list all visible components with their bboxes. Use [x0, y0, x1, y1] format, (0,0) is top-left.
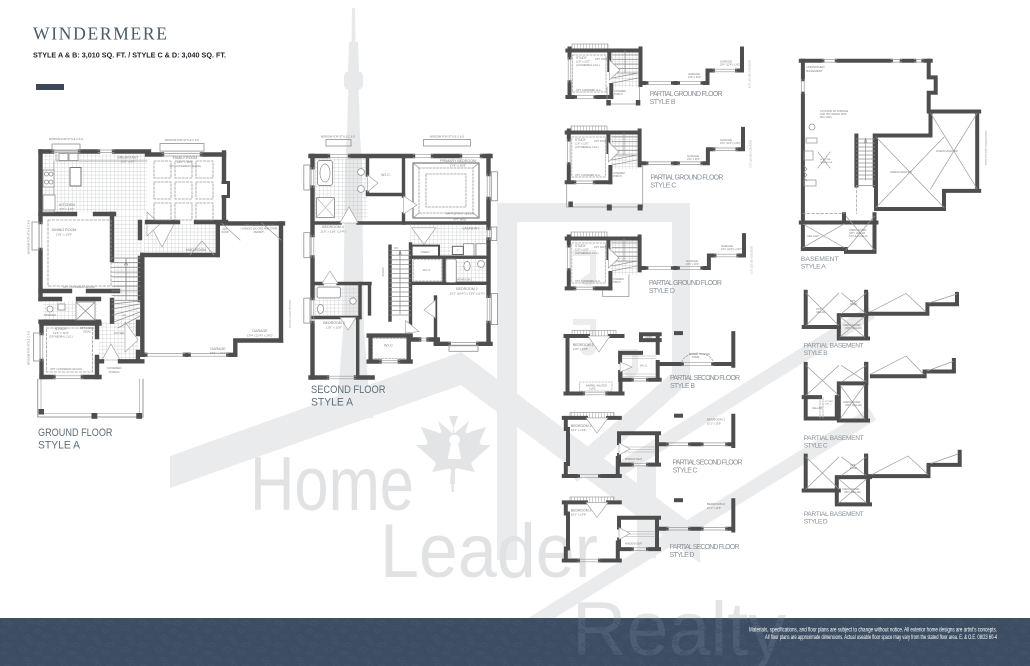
- svg-text:W.I.C.: W.I.C.: [384, 344, 394, 348]
- svg-text:LINEN: LINEN: [421, 250, 430, 254]
- svg-text:OPT. COFFERED CEILING: OPT. COFFERED CEILING: [50, 367, 82, 371]
- svg-text:19'6" x 20'2": 19'6" x 20'2": [210, 351, 226, 355]
- svg-text:WINDOW FOR STYLE C & D: WINDOW FOR STYLE C & D: [430, 135, 464, 139]
- svg-text:10'1" x 13'6": 10'1" x 13'6": [707, 421, 721, 425]
- svg-text:STYLE B AND D): STYLE B AND D): [849, 235, 868, 238]
- svg-text:10'1" x 13'6": 10'1" x 13'6": [707, 506, 721, 510]
- svg-text:OPT. COFFERED CLG.: OPT. COFFERED CLG.: [575, 174, 601, 177]
- svg-text:LINEN: LINEN: [645, 337, 652, 340]
- svg-text:MODIFIED FOR STYLE D: MODIFIED FOR STYLE D: [750, 246, 753, 274]
- svg-text:11'6" x 12'6": 11'6" x 12'6": [326, 325, 342, 329]
- svg-text:GROUND FLOOR: GROUND FLOOR: [38, 427, 113, 439]
- svg-text:GARAGE: GARAGE: [252, 329, 268, 333]
- svg-text:PARTIAL SECOND FLOOR: PARTIAL SECOND FLOOR: [670, 375, 740, 382]
- svg-text:BEDROOM 3: BEDROOM 3: [323, 321, 345, 325]
- svg-text:CELLAR: CELLAR: [816, 311, 826, 314]
- svg-text:CLNG.: CLNG.: [589, 387, 597, 390]
- svg-text:UNEXCAVATED GARAGE AREA: UNEXCAVATED GARAGE AREA: [984, 130, 987, 166]
- svg-text:STYLE D: STYLE D: [649, 288, 675, 295]
- svg-text:OPT. COFFERED CLG.: OPT. COFFERED CLG.: [575, 280, 601, 283]
- svg-text:PARTIAL GROUND FLOOR: PARTIAL GROUND FLOOR: [650, 175, 723, 182]
- svg-text:PARTIAL BASEMENT: PARTIAL BASEMENT: [804, 435, 864, 442]
- svg-text:STYLE B: STYLE B: [670, 383, 695, 390]
- svg-text:DOOR: DOOR: [850, 303, 857, 306]
- svg-text:WAFFLE/TRAY CEILING: WAFFLE/TRAY CEILING: [446, 212, 475, 216]
- svg-text:9 FT. WALL: 9 FT. WALL: [453, 218, 467, 222]
- svg-text:DN: DN: [394, 247, 398, 250]
- svg-text:W.I.C.: W.I.C.: [381, 173, 391, 177]
- svg-text:11'6" x 11'6" (13'4"): 11'6" x 11'6" (13'4"): [320, 229, 345, 233]
- svg-text:10'1" x 13'6": 10'1" x 13'6": [571, 513, 586, 517]
- svg-text:All floor plans are approximat: All floor plans are approximate dimensio…: [765, 635, 997, 641]
- svg-text:11'6" x 12'6": 11'6" x 12'6": [573, 347, 588, 351]
- svg-text:14'0" x 18'0": 14'0" x 18'0": [177, 160, 193, 164]
- svg-text:CELLAR: CELLAR: [807, 234, 820, 238]
- svg-text:STYLE D: STYLE D: [669, 552, 694, 559]
- svg-text:WINDOW SEAT: WINDOW SEAT: [625, 543, 643, 546]
- svg-text:BASEMENT: BASEMENT: [801, 256, 839, 263]
- svg-text:MODIFIED FOR STYLE B: MODIFIED FOR STYLE B: [748, 60, 751, 88]
- svg-text:MUD ROOM: MUD ROOM: [186, 248, 206, 252]
- svg-text:FOYER: FOYER: [114, 331, 125, 335]
- svg-text:PARTIAL BASEMENT: PARTIAL BASEMENT: [804, 511, 864, 518]
- svg-text:(CATHEDRAL CLG.): (CATHEDRAL CLG.): [49, 335, 73, 339]
- svg-text:PORCH: PORCH: [109, 370, 120, 374]
- svg-text:OPT. COFFERED CEILING: OPT. COFFERED CEILING: [63, 285, 95, 289]
- svg-text:PARTIAL GROUND FLOOR: PARTIAL GROUND FLOOR: [650, 91, 723, 98]
- svg-text:9'0" x 14'0": 9'0" x 14'0": [60, 207, 75, 211]
- svg-text:BEDROOM 2: BEDROOM 2: [707, 418, 725, 422]
- svg-text:(OPT. CELLAR): (OPT. CELLAR): [845, 327, 862, 330]
- svg-text:19'6" x 20'2": 19'6" x 20'2": [688, 76, 701, 79]
- svg-text:WINDOW FOR STYLE C & D: WINDOW FOR STYLE C & D: [27, 220, 31, 254]
- svg-text:SECOND FLOOR: SECOND FLOOR: [311, 384, 386, 396]
- svg-text:UP: UP: [122, 314, 126, 317]
- svg-text:OPT. ACCESS DOOR OR: OPT. ACCESS DOOR OR: [244, 223, 274, 227]
- svg-text:DOOR: DOOR: [221, 231, 228, 234]
- svg-text:CELLAR: CELLAR: [812, 406, 822, 410]
- svg-text:19'4" (12'4") x 24'2": 19'4" (12'4") x 24'2": [721, 248, 742, 251]
- svg-text:STYLE D: STYLE D: [804, 519, 828, 526]
- svg-text:PRIMARY BEDROOM: PRIMARY BEDROOM: [440, 159, 476, 163]
- svg-text:19'4" (12'4") x 24'2": 19'4" (12'4") x 24'2": [247, 334, 273, 338]
- svg-text:WINDOW FOR STYLE C & D: WINDOW FOR STYLE C & D: [321, 135, 355, 139]
- svg-text:W.I.C.: W.I.C.: [423, 268, 431, 272]
- svg-text:(OPT. CELLAR): (OPT. CELLAR): [844, 491, 861, 494]
- svg-text:10'1" (10'4") x 13'6" (11'4"): 10'1" (10'4") x 13'6" (11'4"): [449, 291, 484, 295]
- svg-text:WINDOW FOR STYLE C & D: WINDOW FOR STYLE C & D: [165, 138, 199, 142]
- svg-text:OPT. DOOR: OPT. DOOR: [595, 58, 608, 61]
- svg-text:OPT. DOOR: OPT. DOOR: [80, 326, 94, 330]
- svg-text:STUDY: STUDY: [575, 138, 587, 142]
- svg-text:STYLE C: STYLE C: [650, 183, 676, 190]
- svg-text:19'6" x 20'2": 19'6" x 20'2": [686, 263, 699, 266]
- svg-text:MAY VARY: MAY VARY: [820, 116, 832, 119]
- svg-text:STYLE C: STYLE C: [673, 468, 698, 475]
- svg-text:STYLE A: STYLE A: [311, 396, 353, 408]
- svg-text:WINDOW FOR STYLE C & D: WINDOW FOR STYLE C & D: [27, 331, 31, 365]
- svg-text:19'6" x 20'2": 19'6" x 20'2": [687, 158, 700, 161]
- svg-text:OPT. 2: OPT. 2: [825, 404, 832, 406]
- svg-text:PORCH: PORCH: [613, 175, 622, 178]
- svg-text:DOME: DOME: [692, 356, 700, 359]
- svg-text:(CATHEDRAL CLG.): (CATHEDRAL CLG.): [575, 251, 599, 255]
- svg-text:MODIFIED FOR STYLE C: MODIFIED FOR STYLE C: [749, 140, 752, 168]
- svg-text:BEDROOM 2: BEDROOM 2: [456, 287, 478, 291]
- svg-text:WINDOW SEAT: WINDOW SEAT: [625, 458, 643, 461]
- svg-text:DINING ROOM: DINING ROOM: [52, 228, 77, 232]
- svg-text:BEDROOM 2: BEDROOM 2: [707, 502, 725, 506]
- svg-text:BASEMENT: BASEMENT: [806, 69, 823, 73]
- svg-text:PARTIAL GROUND FLOOR: PARTIAL GROUND FLOOR: [649, 280, 722, 287]
- svg-text:WINDOW FOR STYLE C & D: WINDOW FOR STYLE C & D: [49, 137, 83, 141]
- svg-text:(CATHEDRAL CLG.): (CATHEDRAL CLG.): [575, 145, 599, 149]
- svg-text:STYLE B: STYLE B: [650, 99, 676, 106]
- svg-text:BATHROOM 2: BATHROOM 2: [456, 279, 472, 282]
- svg-text:10'6" x 9'0": 10'6" x 9'0": [121, 160, 136, 164]
- svg-text:STYLE C: STYLE C: [804, 443, 828, 450]
- svg-text:19'4" (12'4") x 24'2": 19'4" (12'4") x 24'2": [720, 64, 741, 67]
- svg-text:UNEXCAVATED: UNEXCAVATED: [890, 170, 913, 174]
- svg-text:BEDROOM 4: BEDROOM 4: [322, 225, 344, 229]
- svg-text:LAUNDRY: LAUNDRY: [462, 227, 480, 231]
- svg-text:STUDY: STUDY: [576, 56, 588, 60]
- svg-text:(CATHEDRAL CLG.): (CATHEDRAL CLG.): [576, 63, 600, 67]
- svg-text:10'1" x 13'6": 10'1" x 13'6": [571, 428, 586, 432]
- svg-text:DOOR: DOOR: [850, 467, 857, 470]
- svg-text:STUDY: STUDY: [575, 244, 587, 248]
- svg-text:(OPT. CELLAR): (OPT. CELLAR): [845, 404, 862, 407]
- svg-text:OPT. DOOR: OPT. DOOR: [594, 246, 607, 249]
- svg-text:STYLE A: STYLE A: [801, 264, 826, 271]
- svg-text:UNEXCAVATED: UNEXCAVATED: [936, 149, 959, 153]
- svg-text:PARTIAL BASEMENT: PARTIAL BASEMENT: [804, 343, 864, 350]
- svg-text:POWDER: POWDER: [44, 313, 56, 317]
- svg-text:Materials, specifications, and: Materials, specifications, and floor pla…: [749, 628, 997, 634]
- svg-text:19'4" (12'4") x 24'2": 19'4" (12'4") x 24'2": [720, 142, 741, 145]
- svg-text:W.I.C.: W.I.C.: [640, 364, 648, 368]
- svg-text:STAIRS: STAIRS: [381, 267, 385, 276]
- svg-text:OPT. COFFERED CEILING: OPT. COFFERED CEILING: [169, 164, 201, 168]
- svg-text:OPT. DOOR: OPT. DOOR: [594, 140, 607, 143]
- svg-text:STYLE A: STYLE A: [38, 439, 80, 451]
- svg-text:11'6" x 11'0": 11'6" x 11'0": [53, 331, 69, 335]
- svg-text:PERMIT): PERMIT): [254, 230, 265, 234]
- svg-text:DRAIN LINE: DRAIN LINE: [820, 161, 833, 164]
- svg-text:PORCH: PORCH: [612, 281, 621, 284]
- svg-text:HOT. LINE: HOT. LINE: [820, 159, 831, 161]
- svg-text:OPT. COFFERED CLG.: OPT. COFFERED CLG.: [576, 89, 602, 92]
- svg-text:(DEN): (DEN): [83, 329, 90, 333]
- svg-text:PARTIAL SECOND FLOOR: PARTIAL SECOND FLOOR: [673, 460, 743, 467]
- svg-text:LANDING (DOORS AND STAIR: LANDING (DOORS AND STAIR: [241, 226, 278, 230]
- svg-text:STYLE B: STYLE B: [804, 350, 829, 357]
- svg-text:17'8" x 16'8": 17'8" x 16'8": [450, 163, 466, 167]
- svg-text:PORCH: PORCH: [614, 93, 623, 96]
- svg-text:PARTIAL SECOND FLOOR: PARTIAL SECOND FLOOR: [669, 544, 739, 551]
- svg-text:11'6" x 13'6": 11'6" x 13'6": [56, 233, 72, 237]
- svg-text:GARAGE WIDTH VARIES: GARAGE WIDTH VARIES: [288, 300, 291, 328]
